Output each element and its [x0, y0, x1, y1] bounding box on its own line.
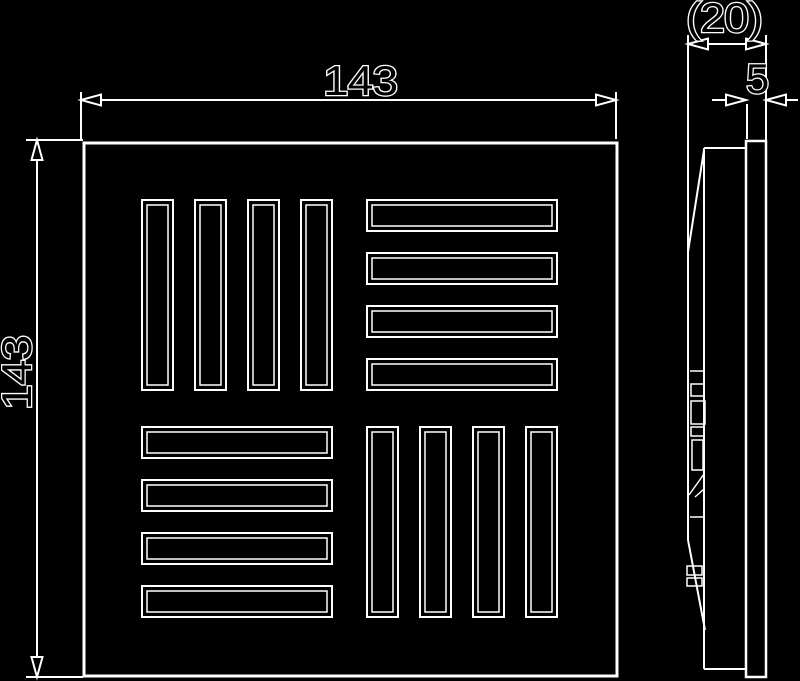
drawing-background [0, 0, 800, 681]
dim-thickness-label: 5 [746, 55, 768, 102]
drawing-canvas: 143 143 [0, 0, 800, 681]
dim-depth-label: (20) [686, 0, 762, 41]
dim-height-label: 143 [0, 336, 40, 410]
dim-width-label: 143 [323, 57, 397, 104]
technical-drawing: 143 143 [0, 0, 800, 681]
